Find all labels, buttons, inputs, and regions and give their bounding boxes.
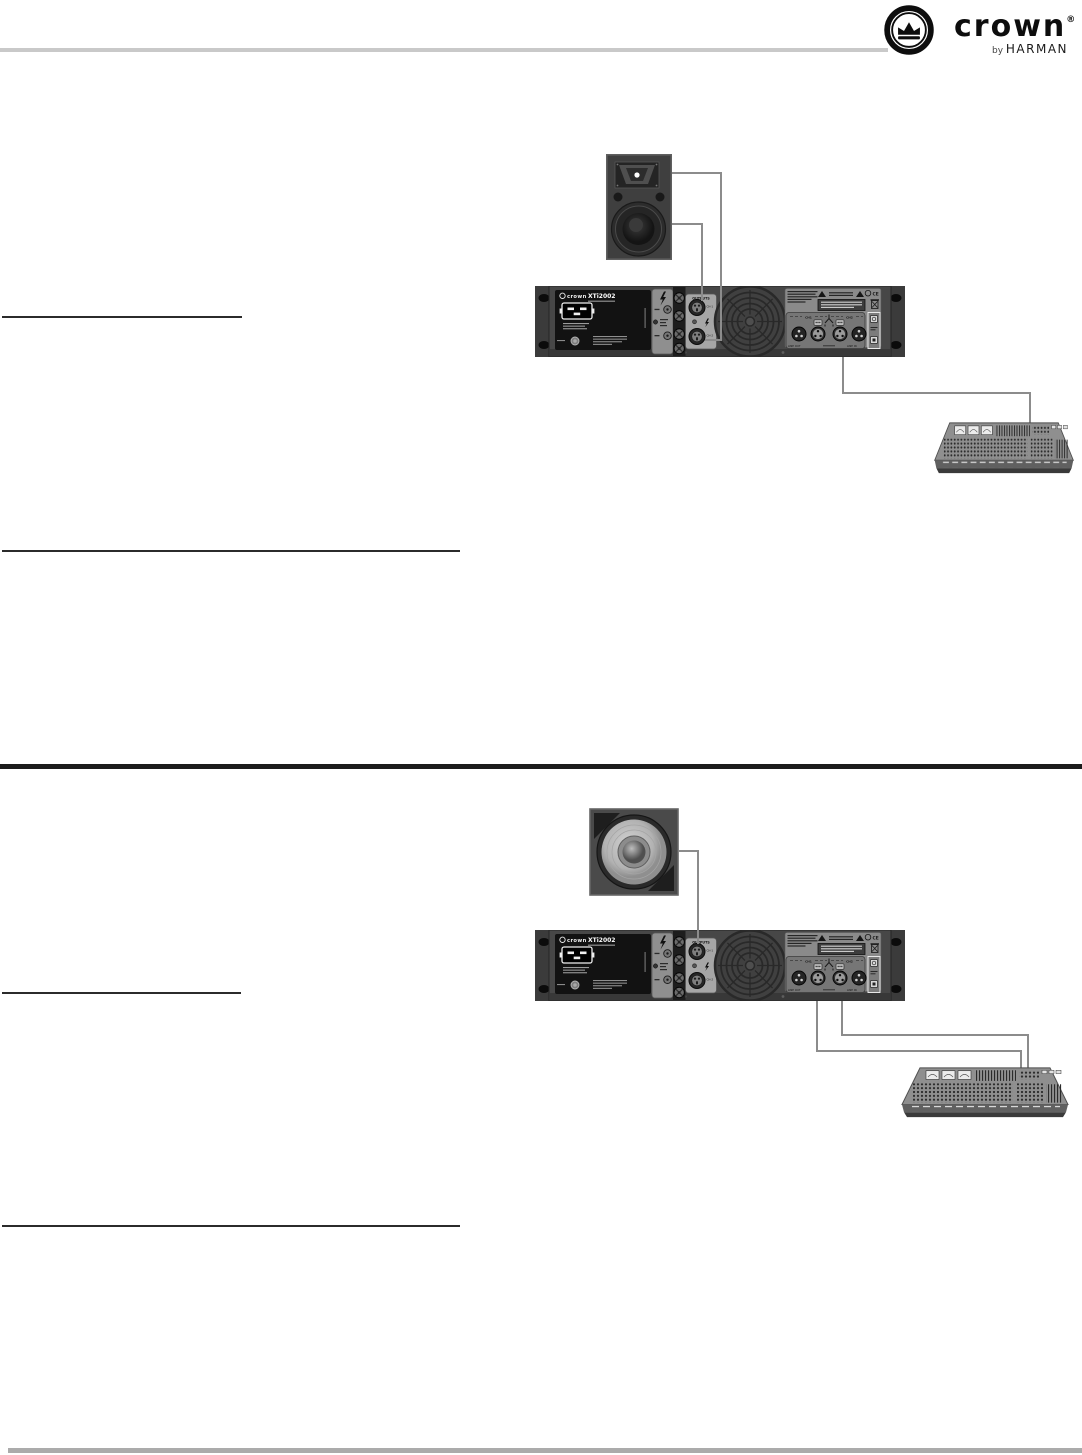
ac-power-section: crown XTi2002 [555,290,651,350]
panel-screw [693,320,697,324]
xlr-ch2-group-label: CH2 [846,315,853,319]
binding-post-1 [674,937,684,947]
sub-speaker-cable [697,850,699,944]
binding-post-2 [674,311,684,321]
binding-post-2 [674,955,684,965]
amplifier-rear-panel: crown XTi2002 [535,930,905,1001]
manual-page: crown® by HARMAN [0,0,1082,1455]
line-out-label: LINE OUT [788,988,801,992]
brand-text: crown [954,9,1066,44]
channel-fader-row [941,461,1066,467]
trademark-symbol: ® [1066,15,1075,25]
xlr-ch1-group-label: CH1 [805,315,812,319]
bass-port [614,193,623,202]
section-divider [0,764,1082,769]
output-wiring-warning-panel [652,933,673,998]
crown-wordmark: crown® [954,12,1075,42]
subwoofer-speaker [589,808,679,896]
mixing-console-art [900,1063,1070,1121]
speakon-ch2-label: CH-2 [707,334,714,338]
aux-knob-field [1017,1083,1043,1102]
amp-model-label: XTi2002 [588,293,615,300]
monitor-knob-cluster [1032,426,1049,435]
harman-byline: by HARMAN [956,43,1068,56]
heading-rule-3 [2,992,241,994]
mixing-console-art [933,418,1075,477]
woofer [612,202,666,256]
mixing-console [900,1063,1070,1121]
usb-port-icon [871,337,878,344]
sub-speaker-cable [679,850,699,852]
subwoofer-driver [597,815,671,889]
two-way-speaker [606,154,672,260]
xlr-ch1-output-male [792,327,806,341]
binding-post-1 [674,293,684,303]
ce-mark-label: CE [873,291,879,297]
xlr-ch2-group-label: CH2 [846,959,853,963]
binding-posts [673,931,686,1000]
console-base [936,468,1071,473]
lf-speaker-cable [701,223,703,301]
binding-post-3 [674,329,684,339]
reset-breaker-button [571,981,579,989]
hf-speaker-cable [672,172,722,174]
vu-meters [926,1071,971,1080]
mixer-input-cable-ch2 [841,1034,1029,1036]
amp-model-label: XTi2002 [588,937,615,944]
output-wiring-warning-panel [652,289,673,354]
line-out-label: LINE OUT [788,344,801,348]
amp-brand-label: crown [567,938,587,944]
binding-posts [673,287,686,356]
vu-meters [955,426,993,435]
crown-emblem-icon [884,5,934,55]
amplifier-rear-panel-art: crown XTi2002 [535,930,905,1001]
console-base [904,1112,1066,1117]
mixer-input-cable [842,392,1031,394]
mixing-console [933,418,1075,477]
top-divider [0,48,888,52]
network-usb-strip [868,313,880,349]
network-port-icon [871,960,878,967]
fan-grille [715,287,785,357]
bottom-divider [8,1448,1082,1453]
binding-post-4 [674,343,684,353]
xlr-ch2-output-male [852,327,866,341]
channel-fader-row [910,1106,1060,1112]
ac-power-inlet [560,303,595,319]
line-in-label: LINE IN [847,988,857,992]
lf-speaker-cable [672,223,703,225]
hf-speaker-cable [705,339,722,341]
xlr-ch2-output-male [852,971,866,985]
horn-tweeter [615,162,659,188]
network-usb-strip [868,957,880,993]
mixer-input-cable-ch2 [841,1001,843,1036]
mixer-input-cable-ch1 [816,1001,818,1052]
group-fader-bank [1046,1084,1062,1102]
ac-power-section: crown XTi2002 [555,934,651,994]
heading-rule-2 [2,550,460,552]
bass-port [656,193,665,202]
network-port-icon [871,316,878,323]
console-buttons [1042,1070,1061,1073]
channel-knob-field [944,439,1028,459]
speakon-ch1-label: CH-1 [707,305,714,309]
speaker-outputs-panel: OUTPUTS CH-1 CH-2 [686,938,717,993]
speakon-ch1-label: CH-1 [707,949,714,953]
reset-breaker-button [571,337,579,345]
ce-mark-label: CE [873,935,879,941]
master-fader-bank [976,1070,1016,1081]
master-fader-bank [996,425,1029,436]
xlr-ch1-output-male [792,971,806,985]
fan-grille [715,931,785,1001]
channel-knob-field [913,1083,1013,1102]
panel-screw [693,964,697,968]
heading-rule-1 [2,316,242,318]
console-buttons [1052,425,1068,428]
xlr-panel: CH1 CH2 [786,957,866,993]
input-section: CE CH1 CH2 [785,933,881,993]
mixer-input-cable-ch1 [816,1050,1022,1052]
aux-knob-field [1031,439,1053,459]
hf-speaker-cable [720,172,722,341]
amp-brand-label: crown [567,294,587,300]
binding-post-3 [674,973,684,983]
byline-brand: HARMAN [1006,42,1068,56]
input-section: CE CH1 CH2 [785,289,881,349]
binding-post-4 [674,987,684,997]
monitor-knob-cluster [1019,1071,1039,1080]
ac-power-inlet [560,947,595,963]
heading-rule-4 [2,1225,460,1227]
mixer-input-cable [842,357,844,394]
line-in-label: LINE IN [847,344,857,348]
group-fader-bank [1055,440,1068,459]
xlr-panel: CH1 CH2 [786,313,866,349]
usb-port-icon [871,981,878,988]
speakon-ch2-label: CH-2 [707,978,714,982]
xlr-ch1-group-label: CH1 [805,959,812,963]
byline-prefix: by [992,46,1006,56]
